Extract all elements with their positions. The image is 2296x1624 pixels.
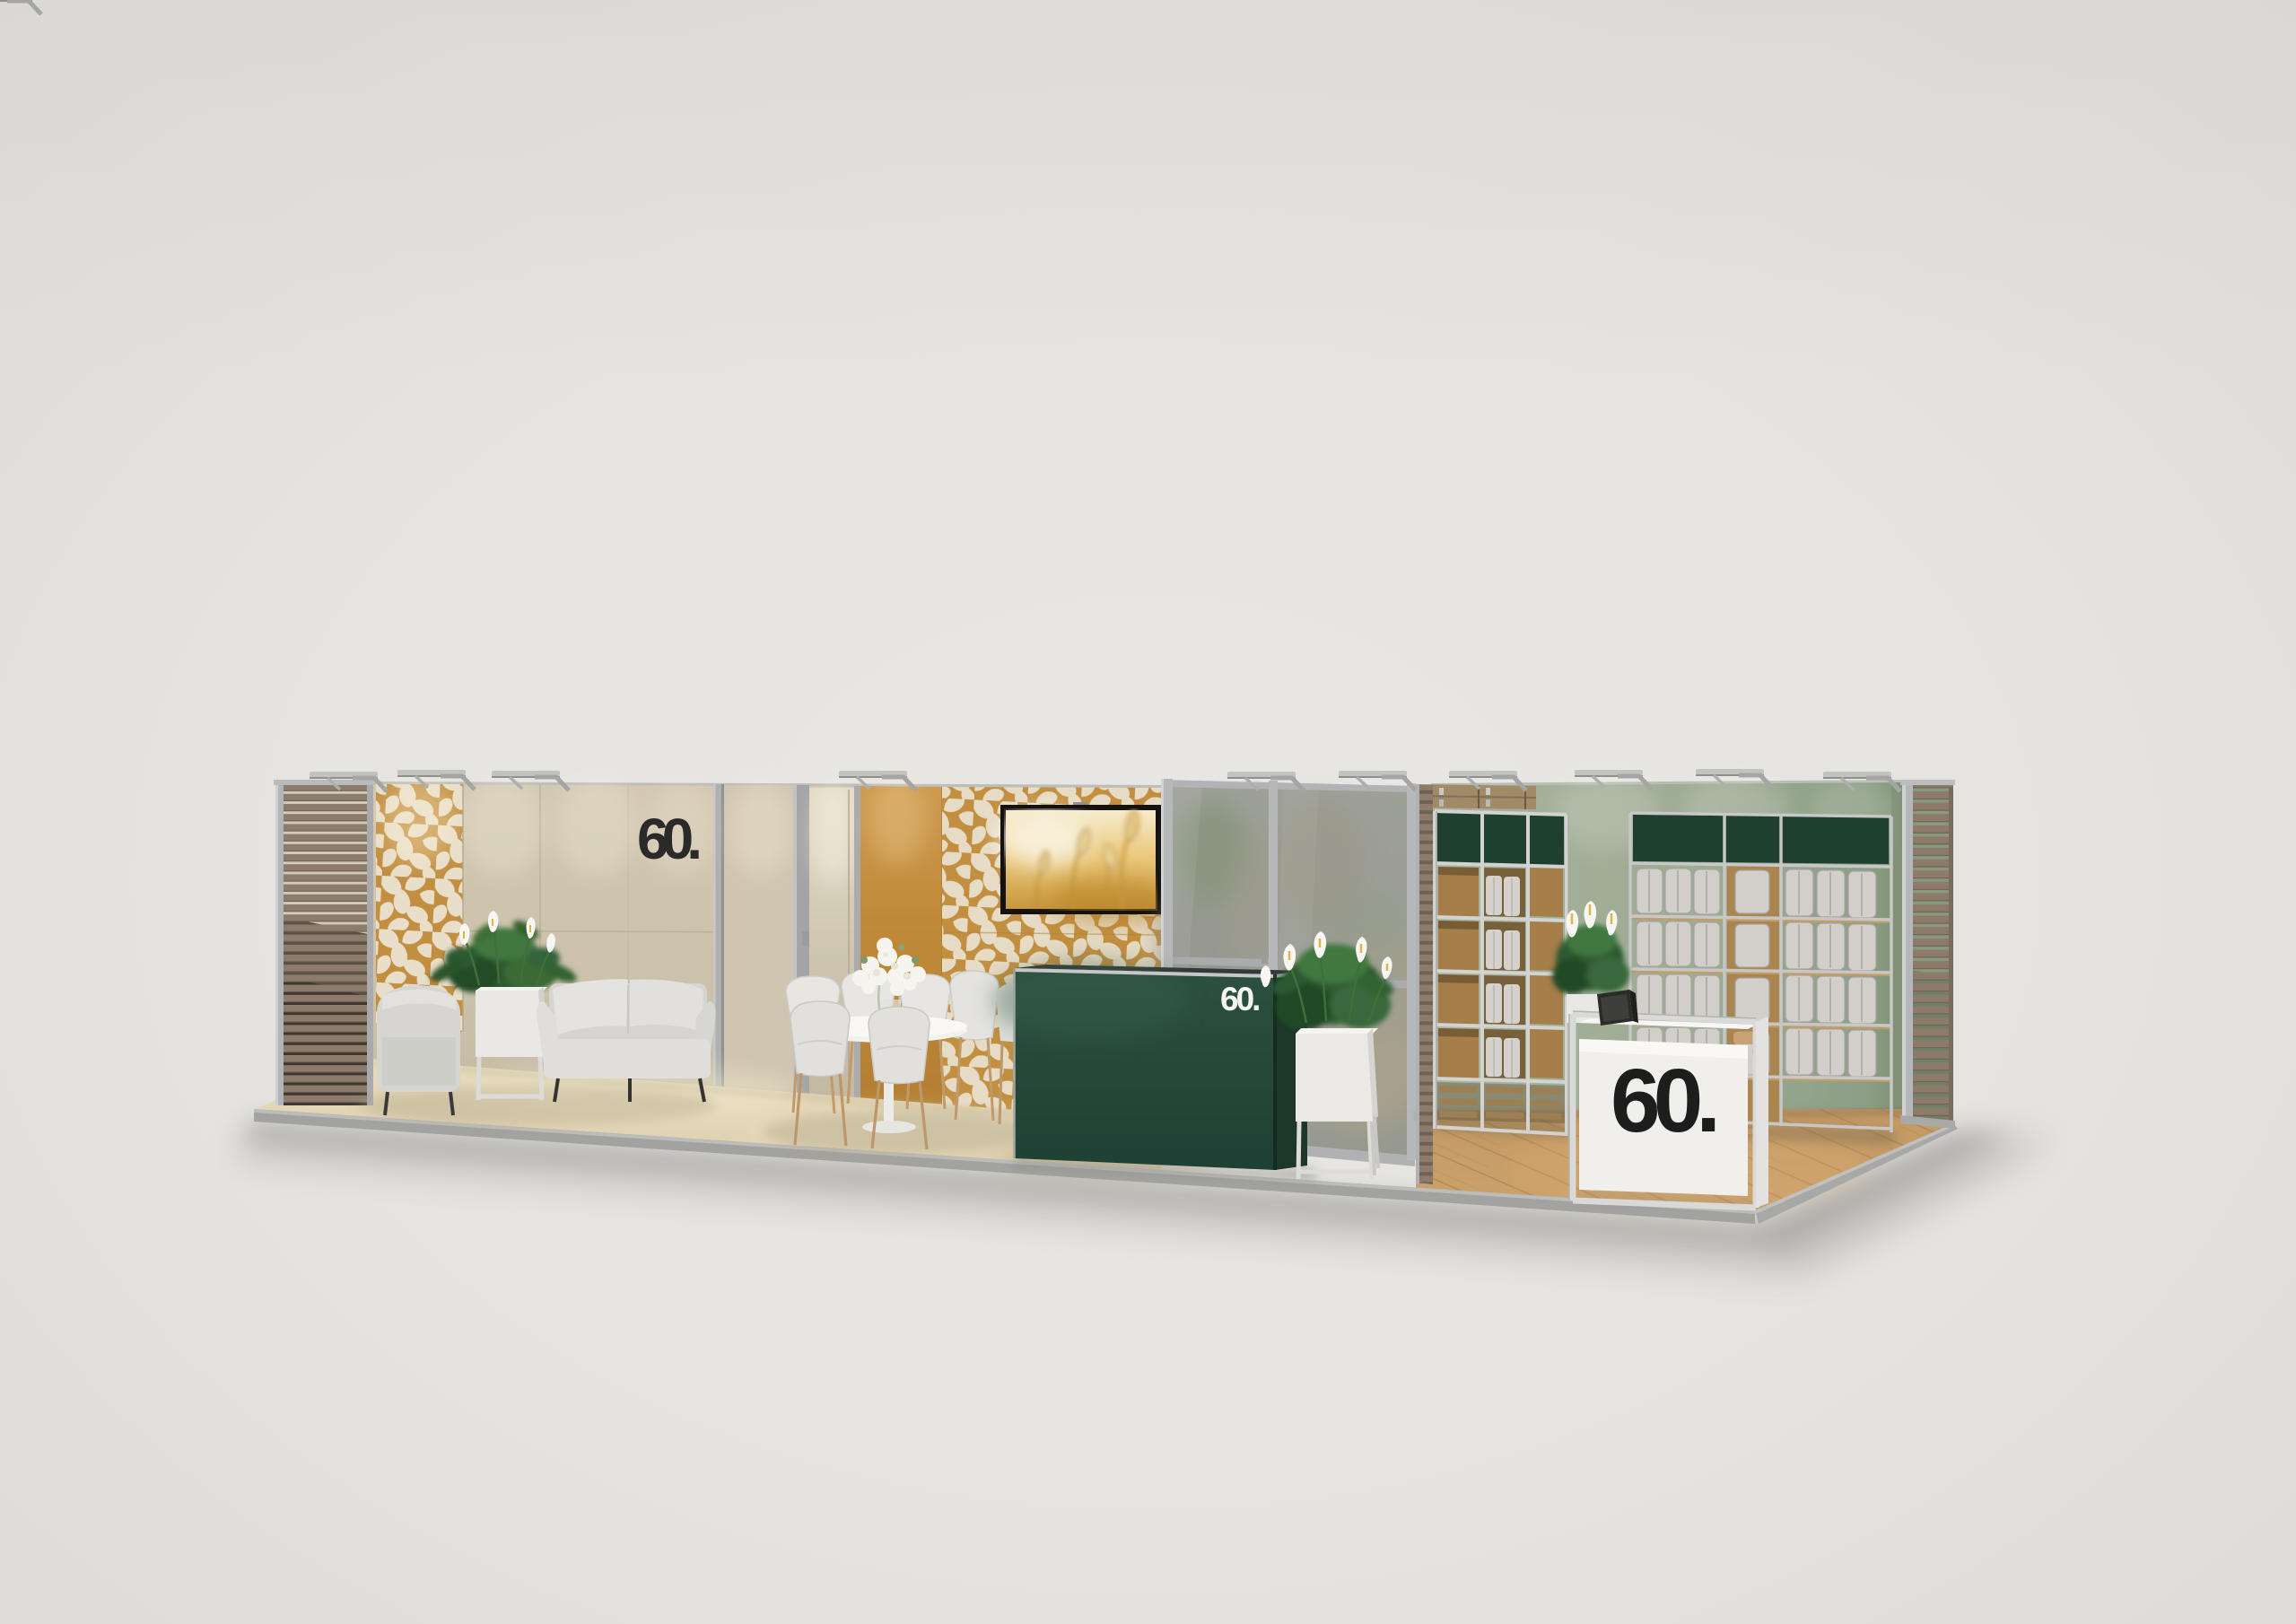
svg-text:60.: 60. (1611, 1051, 1715, 1151)
svg-text:60.: 60. (637, 807, 699, 871)
svg-text:60.: 60. (1220, 981, 1259, 1017)
